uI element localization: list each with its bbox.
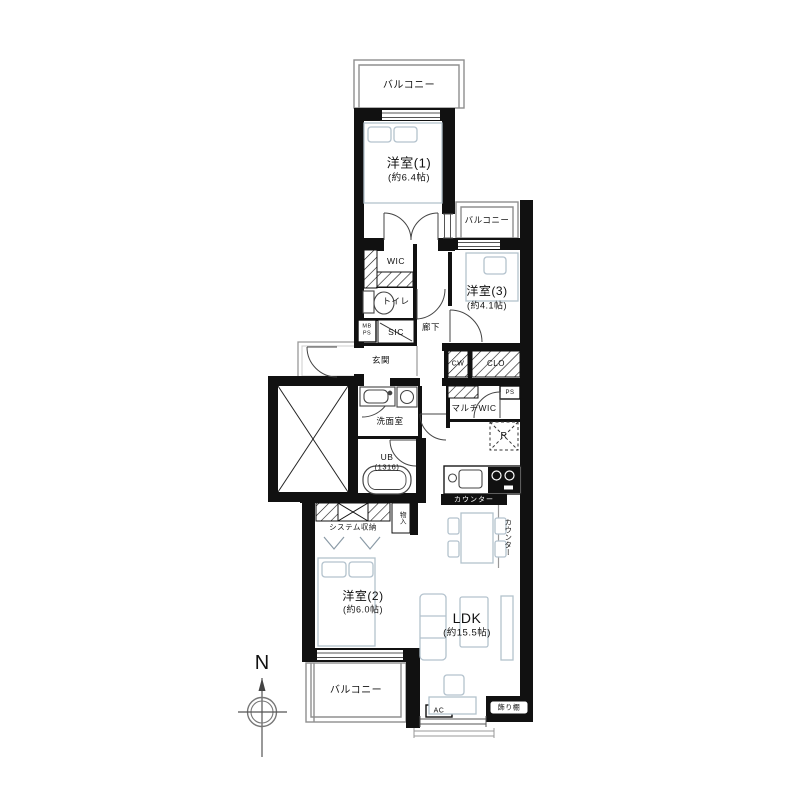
room1-size-label: (約6.4帖) xyxy=(388,173,430,183)
room3-label: 洋室(3) xyxy=(466,285,507,297)
ac-label: AC xyxy=(434,708,445,715)
ldk-label: LDK xyxy=(453,611,482,625)
wic-label: WIC xyxy=(387,257,405,266)
ub-label: UB xyxy=(381,453,394,462)
refrigerator-label: R xyxy=(501,432,508,441)
balcony-top-label: バルコニー xyxy=(383,81,435,91)
room2-size-label: (約6.0帖) xyxy=(343,606,383,615)
system-storage-label: システム収納 xyxy=(329,523,377,531)
north-compass xyxy=(238,678,287,757)
void-x-box xyxy=(278,386,348,492)
room3-size-label: (約4.1帖) xyxy=(467,302,507,311)
display-shelf-label: 飾り棚 xyxy=(498,704,521,711)
entrance-label: 玄関 xyxy=(372,356,390,365)
washroom-label: 洗面室 xyxy=(376,417,403,426)
clo-label: CLO xyxy=(487,360,505,368)
cw-label: CW xyxy=(452,361,465,368)
ps-label: PS xyxy=(363,331,371,337)
entrance-porch xyxy=(298,342,354,380)
balcony-right-label: バルコニー xyxy=(465,216,510,225)
floor-plan-drawing xyxy=(0,0,800,800)
sic-label: SIC xyxy=(388,328,404,337)
counter-side-label: カウンター xyxy=(504,518,512,556)
ub-size-label: (1316) xyxy=(375,463,400,471)
room2-label: 洋室(2) xyxy=(342,590,383,602)
balcony-bottom-label: バルコニー xyxy=(330,686,382,696)
kitchen-unit xyxy=(444,466,521,494)
floor-plan-canvas: バルコニー 洋室(1) (約6.4帖) バルコニー 洋室(3) (約4.1帖) … xyxy=(0,0,800,800)
ps2-label: PS xyxy=(505,390,514,396)
counter-kitchen-label: カウンター xyxy=(454,496,494,503)
ldk-size-label: (約15.5帖) xyxy=(443,628,491,638)
room1-label: 洋室(1) xyxy=(387,157,431,170)
closet-hanger-marks xyxy=(324,537,380,549)
north-label: N xyxy=(255,653,269,673)
storage-label: 物入 xyxy=(398,512,405,525)
hallway-label: 廊下 xyxy=(422,323,440,332)
mb-label: MB xyxy=(362,324,371,330)
washroom-fixtures xyxy=(360,387,417,407)
toilet-label: トイレ xyxy=(382,297,409,306)
multi-wic-label: マルチWIC xyxy=(451,404,496,413)
